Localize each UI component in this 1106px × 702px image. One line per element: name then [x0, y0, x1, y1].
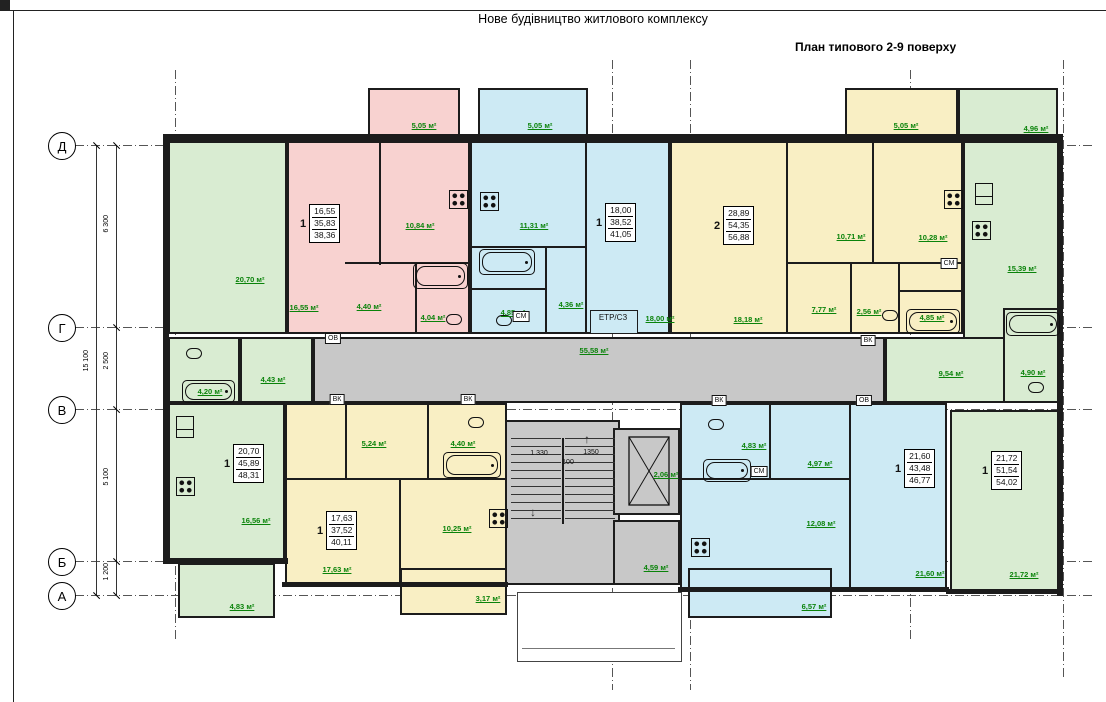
room-area-label: 17,63 м²	[323, 565, 352, 574]
grid-line-vert-5	[1063, 60, 1064, 680]
axis-circle-a: А	[48, 582, 76, 610]
room-area-label: 21,72 м²	[1010, 570, 1039, 579]
room-count: 2	[714, 220, 720, 232]
summary-areas: 21,60 43,48 46,77	[904, 449, 935, 488]
summary-areas: 21,72 51,54 54,02	[991, 451, 1022, 490]
stove-icon	[691, 538, 710, 557]
living-area: 21,72	[994, 453, 1019, 465]
dim-label-v-b: 5 100	[103, 468, 110, 486]
living-area: 28,89	[726, 208, 751, 220]
frame-corner	[0, 0, 10, 10]
bathtub-icon	[703, 459, 751, 482]
room-area-label: 16,56 м²	[242, 516, 271, 525]
drawing-subtitle: План типового 2-9 поверху	[795, 40, 956, 54]
room-green-bottom-right	[950, 410, 1060, 592]
wall	[399, 478, 401, 585]
shaft-label-vk: ВК	[461, 394, 476, 405]
room-area-label: 12,08 м²	[807, 519, 836, 528]
toilet-icon	[708, 419, 724, 430]
apartment-summary-yellow-bottom: 1 17,63 37,52 40,11	[317, 511, 357, 550]
wall	[898, 262, 900, 334]
stove-icon	[489, 509, 508, 528]
axis-circle-v: В	[48, 396, 76, 424]
wall	[562, 438, 564, 524]
stove-icon	[480, 192, 499, 211]
wall	[872, 141, 874, 264]
room-area-label: 4,96 м²	[1024, 124, 1049, 133]
wall	[850, 262, 852, 334]
wall	[285, 478, 507, 480]
fridge-icon	[975, 183, 993, 205]
living-area: 21,60	[907, 451, 932, 463]
fridge-icon	[176, 416, 194, 438]
room-count: 1	[982, 465, 988, 477]
room-area-label: 4,20 м²	[198, 387, 223, 396]
wall	[379, 141, 381, 265]
total-area: 46,77	[907, 475, 932, 486]
apartment-area: 35,83	[312, 218, 337, 230]
room-area-label: 9,54 м²	[939, 369, 964, 378]
wall	[946, 589, 1062, 594]
room-area-label: 4,83 м²	[230, 602, 255, 611]
room-area-label: 15,39 м²	[1008, 264, 1037, 273]
bathtub-icon	[413, 263, 468, 289]
summary-areas: 20,70 45,89 48,31	[233, 444, 264, 483]
total-area: 56,88	[726, 232, 751, 243]
closet-label-sm: СМ	[751, 466, 768, 477]
stove-icon	[944, 190, 963, 209]
balcony-pink	[368, 88, 460, 140]
room-area-label: 4,83 м²	[742, 441, 767, 450]
axis-label-d: Д	[58, 139, 67, 154]
room-area-label: 20,70 м²	[236, 275, 265, 284]
room-area-label: 4,40 м²	[451, 439, 476, 448]
summary-areas: 16,55 35,83 38,36	[309, 204, 340, 243]
axis-label-v: В	[58, 403, 67, 418]
shaft-label-vk: ВК	[712, 395, 727, 406]
apartment-summary-green-bottom-left: 1 20,70 45,89 48,31	[224, 444, 264, 483]
room-area-label: 6,57 м²	[802, 602, 827, 611]
room-area-label: 4,04 м²	[421, 313, 446, 322]
room-area-label: 4,59 м²	[644, 563, 669, 572]
balcony-yellow	[845, 88, 958, 140]
dim-line-total	[96, 145, 97, 595]
electrical-room-label: ЕТР/СЗ	[599, 313, 627, 322]
room-area-label: 4,85 м²	[920, 313, 945, 322]
apartment-blue	[680, 403, 947, 590]
total-area: 41,05	[608, 229, 633, 240]
axis-circle-d: Д	[48, 132, 76, 160]
apartment-area: 38,52	[608, 217, 633, 229]
frame-left-line	[13, 10, 14, 702]
dim-label-d-g: 6 300	[103, 215, 110, 233]
room-area-label: 4,36 м²	[559, 300, 584, 309]
hall-green-left	[240, 337, 313, 403]
living-area: 20,70	[236, 446, 261, 458]
axis-label-b: Б	[58, 555, 67, 570]
axis-circle-b: Б	[48, 548, 76, 576]
room-area-label: 21,60 м²	[916, 569, 945, 578]
wall	[1057, 134, 1063, 596]
summary-areas: 28,89 54,35 56,88	[723, 206, 754, 245]
room-count: 1	[300, 218, 306, 230]
wall	[678, 587, 949, 592]
room-area-label: 4,40 м²	[357, 302, 382, 311]
porch-step-line	[522, 648, 675, 649]
apartment-area: 45,89	[236, 458, 261, 470]
room-area-label: 5,05 м²	[412, 121, 437, 130]
apartment-summary-pink: 1 16,55 35,83 38,36	[300, 204, 340, 243]
elevator-lobby	[613, 520, 680, 585]
apartment-summary-yellow-top: 2 28,89 54,35 56,88	[714, 206, 754, 245]
wall	[282, 582, 508, 587]
room-area-label: 5,05 м²	[894, 121, 919, 130]
total-area: 38,36	[312, 230, 337, 241]
living-area: 18,00	[608, 205, 633, 217]
room-count: 1	[224, 458, 230, 470]
room-area-label: 55,58 м²	[580, 346, 609, 355]
total-area: 48,31	[236, 470, 261, 481]
stove-icon	[449, 190, 468, 209]
shaft-label-ov: ОВ	[325, 333, 341, 344]
room-count: 1	[317, 525, 323, 537]
room-top-left-green	[168, 141, 287, 334]
apartment-area: 54,35	[726, 220, 751, 232]
wall	[163, 558, 288, 564]
room-area-label: 4,97 м²	[808, 459, 833, 468]
bathtub-icon	[443, 452, 501, 478]
wall	[585, 141, 587, 334]
floor-plan-canvas: Нове будівництво житлового комплексу Пла…	[0, 0, 1106, 702]
balcony-cyan	[478, 88, 588, 140]
axis-label-a: А	[58, 589, 67, 604]
living-area: 16,55	[312, 206, 337, 218]
wall	[786, 262, 963, 264]
summary-areas: 17,63 37,52 40,11	[326, 511, 357, 550]
room-area-label: 5,05 м²	[528, 121, 553, 130]
living-area: 17,63	[329, 513, 354, 525]
entrance-porch	[517, 592, 682, 662]
room-area-label: 4,43 м²	[261, 375, 286, 384]
room-area-label: 3,17 м²	[476, 594, 501, 603]
dim-label-g-v: 2 500	[103, 352, 110, 370]
balcony-yellow-bottom	[400, 568, 507, 615]
stair-dim-label: 100	[562, 459, 574, 466]
wall	[163, 134, 169, 564]
wall	[345, 403, 347, 480]
apartment-summary-cyan: 1 18,00 38,52 41,05	[596, 203, 636, 242]
wall	[898, 290, 963, 292]
bathtub-icon	[479, 249, 535, 275]
toilet-icon	[186, 348, 202, 359]
summary-areas: 18,00 38,52 41,05	[605, 203, 636, 242]
shaft-label-vk: ВК	[861, 335, 876, 346]
room-area-label: 4,90 м²	[1021, 368, 1046, 377]
room-area-label: 5,24 м²	[362, 439, 387, 448]
room-area-label: 10,25 м²	[443, 524, 472, 533]
shaft-label-ov: ОВ	[856, 395, 872, 406]
room-area-label: 2,06 м²	[654, 470, 679, 479]
closet-label-sm: СМ	[941, 258, 958, 269]
room-area-label: 2,56 м²	[857, 307, 882, 316]
wall	[769, 403, 771, 480]
wall	[427, 403, 429, 480]
dim-line-segments	[116, 145, 117, 595]
axis-label-g: Г	[58, 321, 65, 336]
dim-label-b-a: 1 200	[103, 563, 110, 581]
apartment-area: 51,54	[994, 465, 1019, 477]
stove-icon	[972, 221, 991, 240]
frame-top-line	[0, 10, 1106, 11]
room-area-label: 10,28 м²	[919, 233, 948, 242]
shaft-label-vk: ВК	[330, 394, 345, 405]
total-area: 40,11	[329, 537, 354, 548]
closet-label-sm: СМ	[513, 311, 530, 322]
room-area-label: 7,77 м²	[812, 305, 837, 314]
stair-dim-label: 1350	[583, 449, 599, 456]
wall	[470, 246, 587, 248]
apartment-area: 37,52	[329, 525, 354, 537]
axis-circle-g: Г	[48, 314, 76, 342]
stair-up-arrow-icon: ↑	[584, 432, 590, 446]
apartment-summary-blue: 1 21,60 43,48 46,77	[895, 449, 935, 488]
room-area-label: 10,71 м²	[837, 232, 866, 241]
toilet-icon	[882, 310, 898, 321]
room-count: 1	[596, 217, 602, 229]
wall	[470, 288, 547, 290]
apartment-summary-green-bottom-right: 1 21,72 51,54 54,02	[982, 451, 1022, 490]
wall	[545, 246, 547, 334]
apartment-area: 43,48	[907, 463, 932, 475]
room-area-label: 16,55 м²	[290, 303, 319, 312]
toilet-icon	[446, 314, 462, 325]
stair-down-arrow-icon: ↓	[530, 505, 536, 519]
total-area: 54,02	[994, 477, 1019, 488]
toilet-icon	[468, 417, 484, 428]
wall	[849, 403, 851, 590]
wall	[786, 141, 788, 334]
wall	[163, 134, 1063, 141]
stove-icon	[176, 477, 195, 496]
bathtub-icon	[1006, 312, 1060, 336]
room-area-label: 18,00 м²	[646, 314, 675, 323]
stair-dim-label: 1 330	[530, 450, 548, 457]
apartment-yellow-bottom	[285, 403, 507, 585]
balcony-green-bottom-left	[178, 563, 275, 618]
room-count: 1	[895, 463, 901, 475]
room-area-label: 11,31 м²	[520, 221, 548, 230]
room-area-label: 18,18 м²	[734, 315, 763, 324]
drawing-title: Нове будівництво житлового комплексу	[478, 12, 708, 26]
toilet-icon	[1028, 382, 1044, 393]
room-area-label: 10,84 м²	[406, 221, 435, 230]
dim-label-total: 15 100	[83, 350, 90, 371]
